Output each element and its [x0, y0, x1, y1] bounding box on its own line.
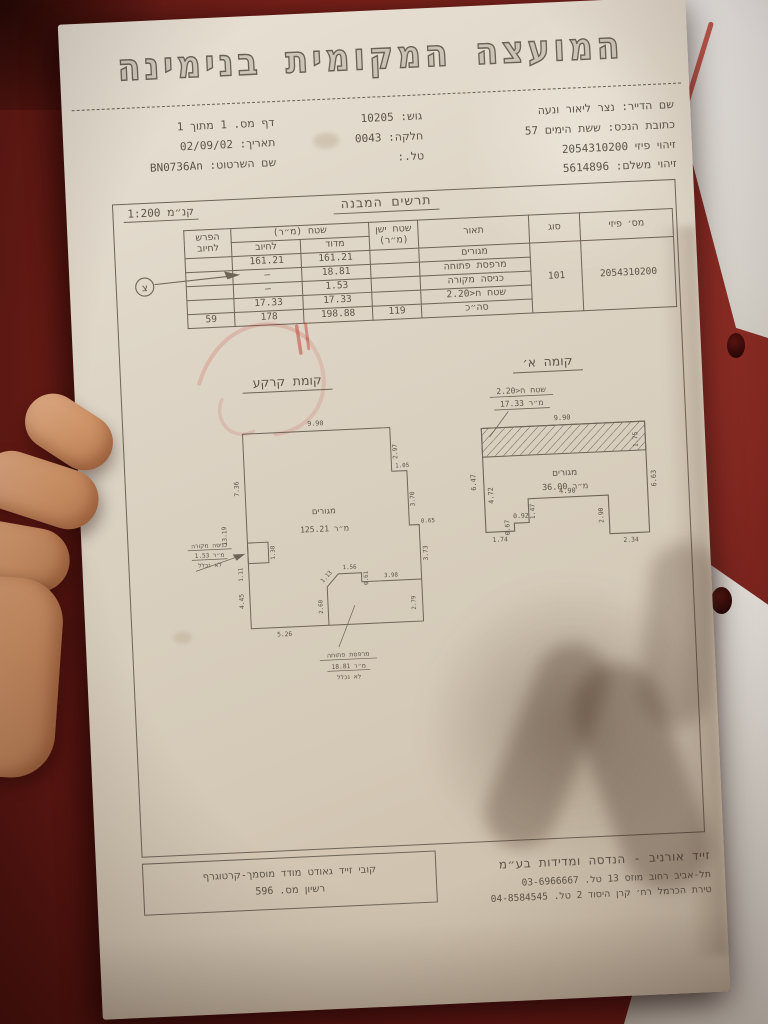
- svg-text:לא נכלל: לא נכלל: [337, 673, 362, 681]
- svg-text:1.13: 1.13: [320, 570, 334, 585]
- survey-document-page: המועצה המקומית בנימינה שם הדייר: נצר ליא…: [58, 0, 731, 1020]
- leather-hole-bottom: [711, 587, 732, 614]
- svg-text:1.05: 1.05: [395, 463, 410, 470]
- col-header-type: סוג: [528, 213, 580, 243]
- north-letter: צ: [142, 283, 148, 294]
- company-footer: זייד אורניב - הנדסה ומדידות בע״מ תל-אביב…: [446, 846, 712, 909]
- photo-of-survey-document: המועצה המקומית בנימינה שם הדייר: נצר ליא…: [0, 0, 768, 1024]
- col-header-physical-id: מס׳ פיזי: [579, 209, 673, 241]
- floor-a-title: קומה א׳: [472, 350, 623, 372]
- svg-text:0.61: 0.61: [364, 570, 371, 585]
- palm: [0, 572, 66, 781]
- svg-text:שטח ח<2.20: שטח ח<2.20: [496, 385, 546, 396]
- svg-text:3.73: 3.73: [422, 545, 430, 561]
- svg-text:6.47: 6.47: [469, 474, 478, 491]
- svg-text:לא נכלל: לא נכלל: [198, 562, 222, 570]
- svg-text:4.45: 4.45: [238, 594, 246, 610]
- svg-text:2.97: 2.97: [392, 444, 400, 460]
- cell-physical-id: 2054310200: [581, 237, 677, 311]
- drawing-frame: קנ״מ 1:200 תרשים המבנה צ מס׳ פיזי סוג תא…: [112, 179, 705, 858]
- svg-text:2.60: 2.60: [318, 599, 325, 614]
- svg-text:מגורים: מגורים: [312, 505, 336, 516]
- svg-text:36.00 מ״ר: 36.00 מ״ר: [542, 480, 589, 492]
- col-header-difference: הפרש לחיוב: [184, 229, 232, 259]
- header-col-owner: שם הדייר: נצר ליאור ונעה כתובת הנכס: ששת…: [422, 95, 677, 186]
- svg-text:17.33 מ״ר: 17.33 מ״ר: [500, 398, 544, 409]
- svg-text:2.79: 2.79: [411, 595, 418, 610]
- svg-text:1.38: 1.38: [270, 545, 277, 560]
- hand-holding-page: [0, 398, 132, 778]
- svg-text:מרפסת פתוחה: מרפסת פתוחה: [327, 650, 370, 660]
- cell-total-old-area: 119: [372, 304, 422, 320]
- svg-text:1.75: 1.75: [631, 431, 640, 447]
- svg-text:5.26: 5.26: [277, 631, 293, 639]
- svg-text:6.63: 6.63: [650, 470, 659, 487]
- svg-text:125.21 מ״ר: 125.21 מ״ר: [300, 523, 349, 534]
- svg-text:4.72: 4.72: [487, 487, 496, 504]
- header-col-sheet: דף מס. 1 מתוך 1 תאריך: 02/09/02 שם השרטו…: [76, 113, 277, 201]
- svg-text:9.90: 9.90: [554, 413, 571, 422]
- scale-label: קנ״מ 1:200: [123, 205, 198, 223]
- svg-text:3.98: 3.98: [384, 572, 399, 579]
- header-col-parcel: גוש: 10205 חלקה: 0043 טל.:: [274, 106, 425, 192]
- svg-text:3.70: 3.70: [409, 491, 417, 507]
- ground-floor-sketch: 9.90 2.97 1.05 3.70 0.65 3.73 2.79 7.36 …: [175, 403, 456, 710]
- svg-text:1.74: 1.74: [492, 535, 508, 544]
- surveyor-stamp-box: קובי זייד גאודט מודד מוסמך-קרטוגרף רשיון…: [142, 850, 438, 915]
- svg-text:1.47: 1.47: [528, 503, 537, 519]
- svg-text:0.92: 0.92: [513, 512, 529, 521]
- svg-text:0.65: 0.65: [421, 518, 436, 525]
- svg-text:מגורים: מגורים: [552, 468, 578, 479]
- svg-text:9.90: 9.90: [307, 419, 323, 428]
- svg-text:1.11: 1.11: [238, 567, 245, 582]
- svg-text:1.56: 1.56: [343, 565, 358, 572]
- floor-a-sketch: שטח ח<2.20 17.33 מ״ר 9.90 1.75 6.47 4.72…: [449, 372, 686, 590]
- cell-type-code: 101: [530, 241, 584, 313]
- leather-hole-top: [727, 333, 745, 358]
- svg-text:2.34: 2.34: [623, 535, 639, 544]
- col-header-old-area: שטח ישן (מ״ר): [369, 220, 419, 250]
- svg-text:2.90: 2.90: [597, 507, 606, 523]
- svg-text:0.67: 0.67: [503, 519, 512, 535]
- svg-text:7.36: 7.36: [233, 481, 241, 497]
- sheet-title: תרשים המבנה: [301, 190, 472, 213]
